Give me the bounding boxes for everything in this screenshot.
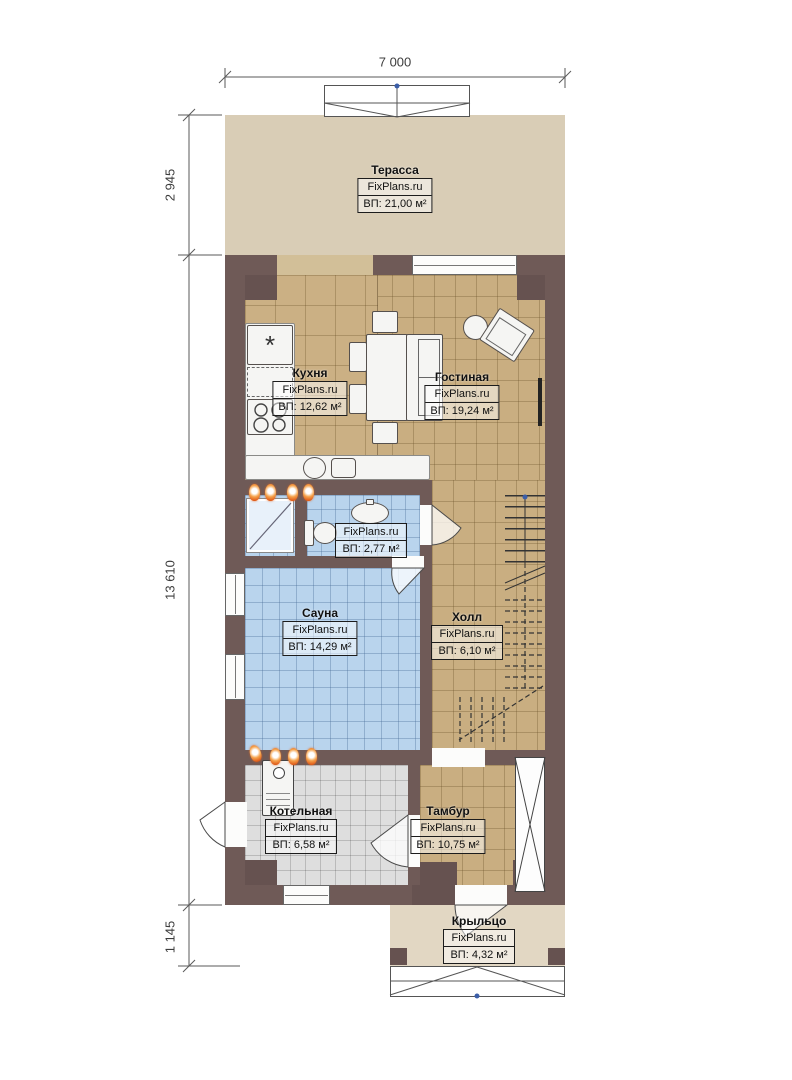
room-name: Сауна	[282, 606, 357, 620]
room-label-terrace: Терасса FixPlans.ru ВП: 21,00 м²	[357, 163, 432, 213]
terrace-door-opening	[277, 255, 373, 275]
room-label-boiler: Котельная FixPlans.ru ВП: 6,58 м²	[265, 804, 337, 854]
room-area: ВП: 2,77 м²	[336, 541, 406, 557]
dim-house-length: 13 610	[163, 560, 178, 600]
room-name: Кухня	[272, 366, 347, 380]
brand-watermark: FixPlans.ru	[411, 820, 484, 837]
brand-watermark: FixPlans.ru	[425, 386, 498, 403]
radiator-icon	[249, 484, 260, 501]
dim-terrace-depth: 2 945	[163, 169, 178, 202]
shower-tray	[247, 499, 293, 552]
dining-table	[366, 334, 408, 421]
hall-vestibule-opening	[432, 748, 485, 767]
room-area: ВП: 12,62 м²	[273, 399, 346, 415]
radiator-icon	[303, 484, 314, 501]
room-area: ВП: 4,32 м²	[444, 947, 514, 963]
room-label-porch: Крыльцо FixPlans.ru ВП: 4,32 м²	[443, 914, 515, 964]
boiler-exterior-door-swing	[200, 802, 225, 847]
porch-column-left	[390, 948, 407, 965]
window-sauna-2	[225, 654, 245, 700]
washbasin-faucet	[366, 499, 374, 505]
room-label-sauna: Сауна FixPlans.ru ВП: 14,29 м²	[282, 606, 357, 656]
room-area: ВП: 19,24 м²	[425, 403, 498, 419]
floor-plan-canvas: *	[0, 0, 792, 1080]
room-label-living: Гостиная FixPlans.ru ВП: 19,24 м²	[424, 370, 499, 420]
room-label-hall: Холл FixPlans.ru ВП: 6,10 м²	[431, 610, 503, 660]
boiler-gauge	[273, 767, 285, 779]
porch-steps	[390, 966, 565, 997]
brand-watermark: FixPlans.ru	[358, 179, 431, 196]
porch-column-right	[548, 948, 565, 965]
radiator-icon	[287, 484, 298, 501]
corner-pier-ne	[517, 275, 545, 300]
wall-east	[545, 255, 565, 905]
fridge: *	[247, 325, 293, 365]
tv	[538, 378, 542, 426]
brand-watermark: FixPlans.ru	[266, 820, 336, 837]
corner-pier-sw	[245, 860, 277, 885]
room-area: ВП: 14,29 м²	[283, 639, 356, 655]
chair-bottom	[372, 422, 398, 444]
radiator-icon	[270, 748, 281, 765]
radiator-icon	[288, 748, 299, 765]
boiler-exterior-door-opening	[225, 802, 247, 847]
toilet-bowl	[313, 522, 337, 544]
room-area: ВП: 6,10 м²	[432, 643, 502, 659]
chair-left-1	[349, 342, 367, 372]
window-south	[283, 885, 330, 905]
brand-watermark: FixPlans.ru	[444, 930, 514, 947]
dim-porch-depth: 1 145	[163, 921, 178, 954]
corner-pier-nw	[245, 275, 277, 300]
room-label-bathroom: FixPlans.ru ВП: 2,77 м²	[335, 523, 407, 558]
room-name: Холл	[431, 610, 503, 624]
washbasin	[351, 502, 389, 524]
brand-watermark: FixPlans.ru	[283, 622, 356, 639]
room-name: Гостиная	[424, 370, 499, 384]
staircase-upper-flight	[505, 495, 545, 571]
terrace-steps	[324, 85, 470, 117]
sauna-floor	[245, 568, 420, 750]
chair-top	[372, 311, 398, 333]
room-name: Крыльцо	[443, 914, 515, 928]
room-name: Терасса	[357, 163, 432, 177]
brand-watermark: FixPlans.ru	[273, 382, 346, 399]
window-north	[412, 255, 517, 275]
room-area: ВП: 21,00 м²	[358, 196, 431, 212]
entry-door-opening	[455, 885, 507, 905]
radiator-icon	[265, 484, 276, 501]
room-name: Тамбур	[410, 804, 485, 818]
room-area: ВП: 10,75 м²	[411, 837, 484, 853]
room-label-kitchen: Кухня FixPlans.ru ВП: 12,62 м²	[272, 366, 347, 416]
chair-left-2	[349, 384, 367, 414]
wardrobe	[515, 757, 545, 892]
window-sauna-1	[225, 573, 245, 616]
kitchen-sink-square-bowl	[331, 458, 356, 478]
radiator-icon	[306, 748, 317, 765]
room-name: Котельная	[265, 804, 337, 818]
room-label-vestibule: Тамбур FixPlans.ru ВП: 10,75 м²	[410, 804, 485, 854]
kitchen-sink-round-bowl	[303, 457, 326, 479]
brand-watermark: FixPlans.ru	[336, 524, 406, 541]
room-area: ВП: 6,58 м²	[266, 837, 336, 853]
brand-watermark: FixPlans.ru	[432, 626, 502, 643]
bathroom-door-opening	[420, 505, 432, 545]
wall-south	[225, 885, 565, 905]
dim-width-top: 7 000	[379, 55, 412, 70]
